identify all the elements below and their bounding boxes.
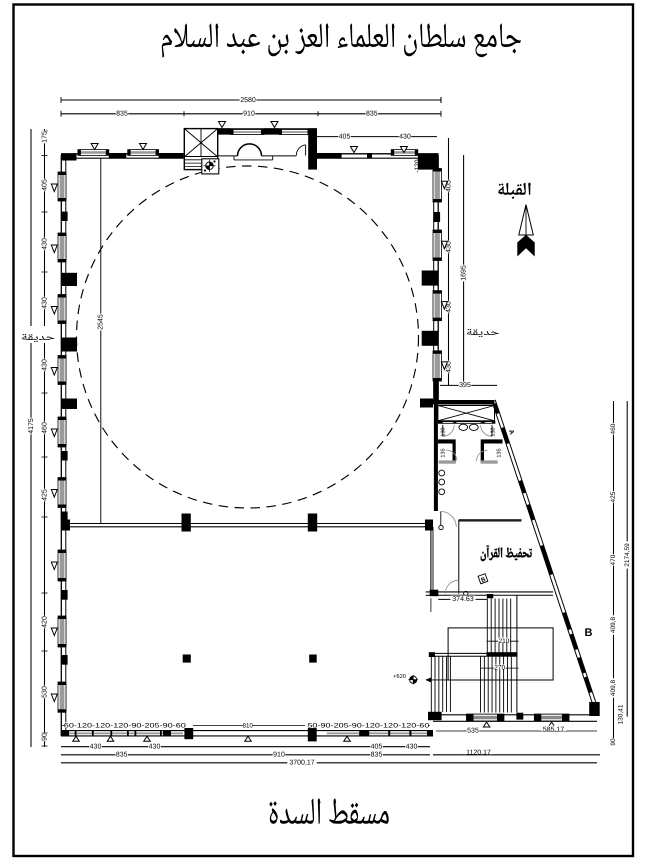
svg-text:835: 835: [366, 111, 378, 118]
svg-text:90: 90: [41, 733, 48, 741]
svg-text:530: 530: [41, 686, 48, 698]
svg-text:2580: 2580: [240, 97, 256, 104]
svg-text:60-120-120-120-90-205-90-60: 60-120-120-120-90-205-90-60: [64, 723, 187, 730]
svg-text:135: 135: [441, 448, 447, 457]
svg-text:810: 810: [243, 722, 254, 729]
svg-text:2545: 2545: [98, 314, 105, 330]
svg-text:835: 835: [116, 111, 128, 118]
svg-text:90: 90: [610, 738, 617, 746]
svg-text:430: 430: [41, 359, 48, 371]
svg-text:175: 175: [41, 131, 48, 143]
svg-text:3700,17: 3700,17: [289, 760, 314, 767]
svg-text:535: 535: [467, 727, 479, 734]
svg-text:460: 460: [610, 423, 617, 434]
svg-text:405: 405: [339, 133, 351, 140]
svg-text:1120,17: 1120,17: [466, 750, 491, 757]
svg-text:585,17: 585,17: [543, 726, 565, 733]
svg-text:430: 430: [149, 743, 161, 750]
svg-text:460: 460: [41, 422, 48, 434]
svg-text:835: 835: [116, 752, 128, 759]
svg-text:130,41: 130,41: [618, 704, 625, 724]
svg-text:374.63: 374.63: [452, 596, 474, 603]
svg-text:910: 910: [243, 111, 255, 118]
svg-text:425: 425: [41, 489, 48, 501]
svg-text:2174,59: 2174,59: [624, 543, 631, 567]
svg-text:B: B: [585, 627, 593, 639]
svg-text:430: 430: [41, 297, 48, 309]
svg-text:130: 130: [491, 427, 497, 436]
svg-text:430: 430: [406, 743, 418, 750]
svg-text:135: 135: [497, 448, 503, 457]
svg-text:430: 430: [90, 743, 102, 750]
svg-text:910: 910: [273, 752, 285, 759]
svg-text:425: 425: [610, 491, 617, 502]
svg-text:409,8: 409,8: [610, 616, 617, 633]
svg-text:405: 405: [371, 743, 383, 750]
svg-text:50-90-205-90-120-120-120-60: 50-90-205-90-120-120-120-60: [307, 723, 430, 730]
svg-text:270: 270: [494, 665, 505, 672]
svg-text:430: 430: [399, 133, 411, 140]
svg-text:405: 405: [41, 179, 48, 191]
svg-text:130: 130: [441, 427, 447, 436]
svg-text:210: 210: [499, 638, 510, 645]
svg-text:395: 395: [459, 382, 471, 389]
svg-text:409,8: 409,8: [610, 679, 617, 696]
svg-text:420: 420: [41, 616, 48, 628]
svg-text:430: 430: [41, 238, 48, 250]
svg-text:470: 470: [610, 554, 617, 565]
svg-text:4175: 4175: [28, 418, 35, 434]
svg-text:835: 835: [371, 752, 383, 759]
svg-text:1695: 1695: [460, 265, 467, 281]
svg-text:+620: +620: [393, 673, 406, 680]
